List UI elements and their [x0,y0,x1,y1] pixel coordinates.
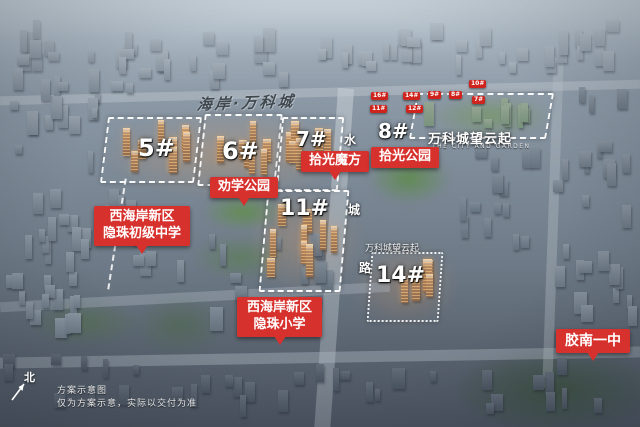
marker-label-line1: 西海岸新区 [247,300,312,317]
marker-quanxue-park: 劝学公园 [210,177,278,198]
project-subtitle-label: THE CITY AND GARDEN [432,143,531,150]
pointer-arrow [238,197,250,206]
disclaimer-line2: 仅为方案示意，实际以交付为准 [57,396,197,409]
marker-primary-school: 西海岸新区 隐珠小学 [237,297,322,337]
marker-shiguang-park: 拾光公园 [371,147,439,168]
road-name-char: 城 [348,201,360,218]
plot-number-5: 5# [138,134,175,162]
plot-number-7: 7# [296,127,327,151]
project-watermark: 海岸·万科城 [196,90,297,115]
marker-label: 胶南一中 [565,333,621,349]
road-name-char: 路 [359,259,371,276]
building-badge: 14# [403,92,420,100]
road-name-char: 水 [344,131,356,148]
building-badge: 11# [370,105,387,113]
marker-label: 劝学公园 [218,179,270,194]
plot-number-11: 11# [280,196,329,221]
plot-number-8: 8# [378,119,409,143]
marker-label-line2: 隐珠初级中学 [103,226,181,243]
disclaimer-line1: 方案示意图 [57,383,107,396]
building-badge: 7# [472,96,485,104]
pointer-arrow [329,171,341,180]
pointer-arrow [136,245,148,254]
marker-jiaonan-school: 胶南一中 [556,329,630,353]
building-badge: 9# [428,91,441,99]
pointer-arrow [274,336,286,345]
aerial-masterplan-rendering: 海岸·万科城 16# 11# 14# 12# 9# 8# 10# 7# 万科城望… [0,0,640,427]
building-badge: 12# [406,105,423,113]
pointer-arrow [587,352,599,361]
building-badge: 10# [469,80,486,88]
marker-label-line1: 西海岸新区 [103,209,181,226]
building-badge: 16# [371,92,388,100]
marker-junior-high-school: 西海岸新区 隐珠初级中学 [94,206,190,246]
marker-label-line2: 隐珠小学 [247,317,312,334]
compass-arrow-icon [6,378,30,404]
marker-label: 拾光公园 [379,149,431,164]
building-badge: 8# [449,91,462,99]
project-name-small: 万科城望云起 [365,241,419,254]
marker-label: 拾光魔方 [309,153,361,168]
plot-number-6: 6# [222,137,259,165]
plot-number-14: 14# [376,263,425,288]
marker-shiguang-mofang: 拾光魔方 [301,151,369,172]
